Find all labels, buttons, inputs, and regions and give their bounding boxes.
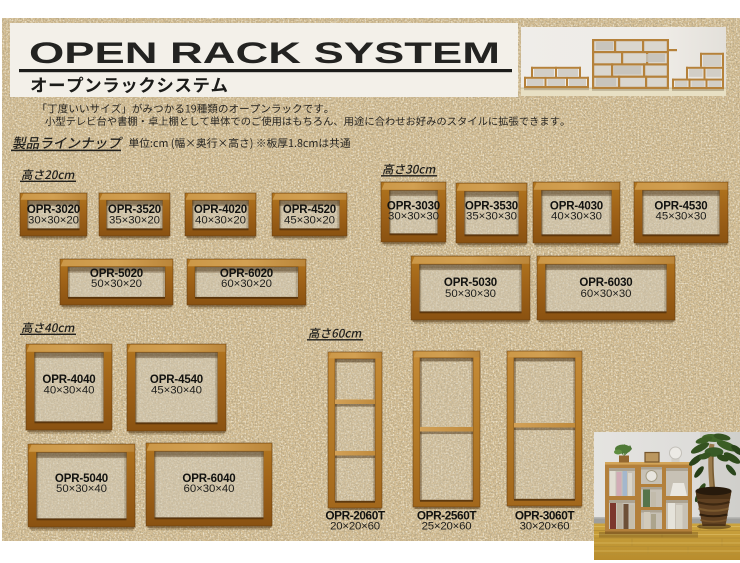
svg-text:35×30×20: 35×30×20: [109, 215, 160, 227]
svg-text:40×30×40: 40×30×40: [44, 385, 95, 397]
svg-text:50×30×20: 50×30×20: [91, 278, 142, 290]
svg-text:30×30×30: 30×30×30: [388, 211, 439, 223]
svg-text:OPEN RACK SYSTEM: OPEN RACK SYSTEM: [29, 37, 500, 70]
svg-text:20×20×60: 20×20×60: [330, 521, 380, 533]
svg-text:50×30×30: 50×30×30: [445, 288, 496, 300]
svg-text:30×20×60: 30×20×60: [520, 521, 570, 533]
svg-text:50×30×40: 50×30×40: [56, 483, 107, 495]
svg-text:40×30×20: 40×30×20: [195, 215, 246, 227]
svg-text:45×30×30: 45×30×30: [656, 211, 707, 223]
svg-text:35×30×30: 35×30×30: [466, 211, 517, 223]
svg-text:45×30×40: 45×30×40: [151, 385, 202, 397]
svg-text:45×30×20: 45×30×20: [284, 215, 335, 227]
svg-text:25×20×60: 25×20×60: [422, 521, 472, 533]
svg-text:60×30×20: 60×30×20: [221, 278, 272, 290]
svg-text:40×30×30: 40×30×30: [551, 211, 602, 223]
svg-text:30×30×20: 30×30×20: [28, 215, 79, 227]
svg-text:60×30×40: 60×30×40: [184, 483, 235, 495]
svg-text:60×30×30: 60×30×30: [581, 288, 632, 300]
